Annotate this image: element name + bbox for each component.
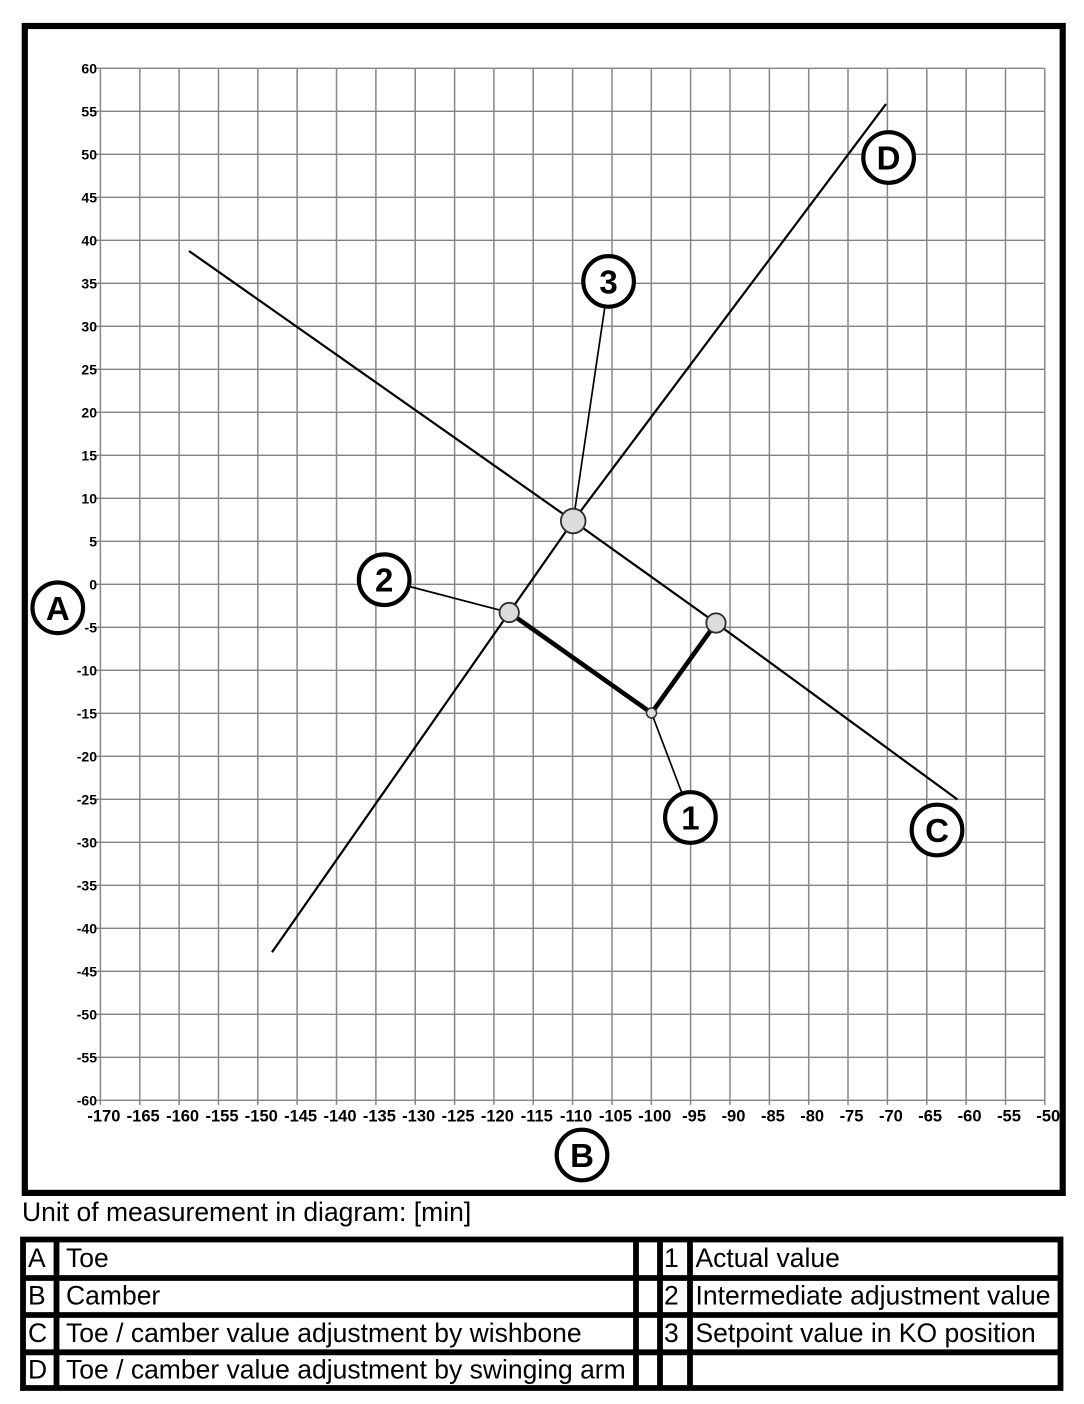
svg-text:-170: -170 bbox=[87, 1108, 120, 1126]
svg-text:-150: -150 bbox=[245, 1108, 278, 1126]
svg-text:-40: -40 bbox=[77, 920, 97, 936]
svg-text:-45: -45 bbox=[77, 963, 97, 979]
svg-text:-120: -120 bbox=[481, 1108, 514, 1126]
svg-text:-145: -145 bbox=[284, 1108, 317, 1126]
svg-text:-55: -55 bbox=[997, 1108, 1021, 1126]
svg-text:C: C bbox=[925, 812, 949, 849]
svg-text:-50: -50 bbox=[77, 1006, 97, 1022]
svg-text:-20: -20 bbox=[77, 748, 97, 764]
svg-text:3: 3 bbox=[664, 1318, 679, 1348]
svg-text:-60: -60 bbox=[958, 1108, 982, 1126]
svg-text:C: C bbox=[28, 1318, 47, 1348]
svg-text:25: 25 bbox=[81, 361, 97, 377]
svg-text:-140: -140 bbox=[323, 1108, 356, 1126]
svg-text:3: 3 bbox=[599, 263, 617, 300]
svg-text:-165: -165 bbox=[127, 1108, 160, 1126]
svg-text:Intermediate adjustment value: Intermediate adjustment value bbox=[696, 1281, 1051, 1311]
svg-text:0: 0 bbox=[89, 576, 97, 592]
svg-text:-30: -30 bbox=[77, 834, 97, 850]
svg-text:-80: -80 bbox=[800, 1108, 824, 1126]
svg-text:-95: -95 bbox=[682, 1108, 706, 1126]
svg-text:Setpoint value in KO position: Setpoint value in KO position bbox=[696, 1318, 1036, 1348]
svg-text:-135: -135 bbox=[363, 1108, 396, 1126]
svg-text:Toe / camber value adjustment: Toe / camber value adjustment by wishbon… bbox=[66, 1318, 582, 1348]
svg-text:45: 45 bbox=[81, 189, 97, 205]
svg-text:Unit of measurement in diagram: Unit of measurement in diagram: [min] bbox=[22, 1197, 471, 1227]
svg-text:2: 2 bbox=[664, 1281, 679, 1311]
svg-text:-75: -75 bbox=[840, 1108, 864, 1126]
svg-text:-90: -90 bbox=[722, 1108, 746, 1126]
svg-text:-15: -15 bbox=[77, 705, 97, 721]
svg-text:5: 5 bbox=[89, 533, 97, 549]
svg-text:60: 60 bbox=[81, 60, 97, 76]
svg-text:-50: -50 bbox=[1036, 1108, 1060, 1126]
svg-text:-35: -35 bbox=[77, 877, 97, 893]
svg-text:-5: -5 bbox=[85, 619, 98, 635]
svg-text:-155: -155 bbox=[205, 1108, 238, 1126]
svg-text:-85: -85 bbox=[761, 1108, 785, 1126]
svg-text:-10: -10 bbox=[77, 662, 97, 678]
svg-text:35: 35 bbox=[81, 275, 97, 291]
svg-text:Toe / camber value adjustment: Toe / camber value adjustment by swingin… bbox=[66, 1354, 626, 1384]
svg-text:15: 15 bbox=[81, 447, 97, 463]
svg-text:-60: -60 bbox=[77, 1092, 97, 1108]
svg-text:1: 1 bbox=[664, 1243, 679, 1273]
svg-text:A: A bbox=[28, 1243, 46, 1273]
svg-text:-100: -100 bbox=[638, 1108, 671, 1126]
svg-text:-160: -160 bbox=[166, 1108, 199, 1126]
svg-text:10: 10 bbox=[81, 490, 97, 506]
svg-text:1: 1 bbox=[681, 800, 699, 837]
svg-text:55: 55 bbox=[81, 103, 97, 119]
svg-text:B: B bbox=[28, 1281, 46, 1311]
svg-text:-125: -125 bbox=[442, 1108, 475, 1126]
svg-text:B: B bbox=[570, 1137, 594, 1174]
svg-text:30: 30 bbox=[81, 318, 97, 334]
svg-text:2: 2 bbox=[375, 562, 393, 599]
svg-text:-105: -105 bbox=[599, 1108, 632, 1126]
svg-text:A: A bbox=[46, 590, 70, 627]
svg-text:-25: -25 bbox=[77, 791, 97, 807]
svg-text:Toe: Toe bbox=[66, 1243, 109, 1273]
svg-text:D: D bbox=[877, 140, 901, 177]
svg-text:Actual value: Actual value bbox=[696, 1243, 840, 1273]
svg-text:50: 50 bbox=[81, 146, 97, 162]
svg-text:-130: -130 bbox=[402, 1108, 435, 1126]
svg-text:20: 20 bbox=[81, 404, 97, 420]
svg-text:Camber: Camber bbox=[66, 1281, 160, 1311]
svg-text:-70: -70 bbox=[879, 1108, 903, 1126]
svg-text:-65: -65 bbox=[918, 1108, 942, 1126]
svg-text:-55: -55 bbox=[77, 1049, 97, 1065]
svg-text:40: 40 bbox=[81, 232, 97, 248]
svg-text:-115: -115 bbox=[521, 1108, 553, 1126]
svg-text:D: D bbox=[28, 1354, 47, 1384]
svg-text:-110: -110 bbox=[560, 1108, 592, 1126]
